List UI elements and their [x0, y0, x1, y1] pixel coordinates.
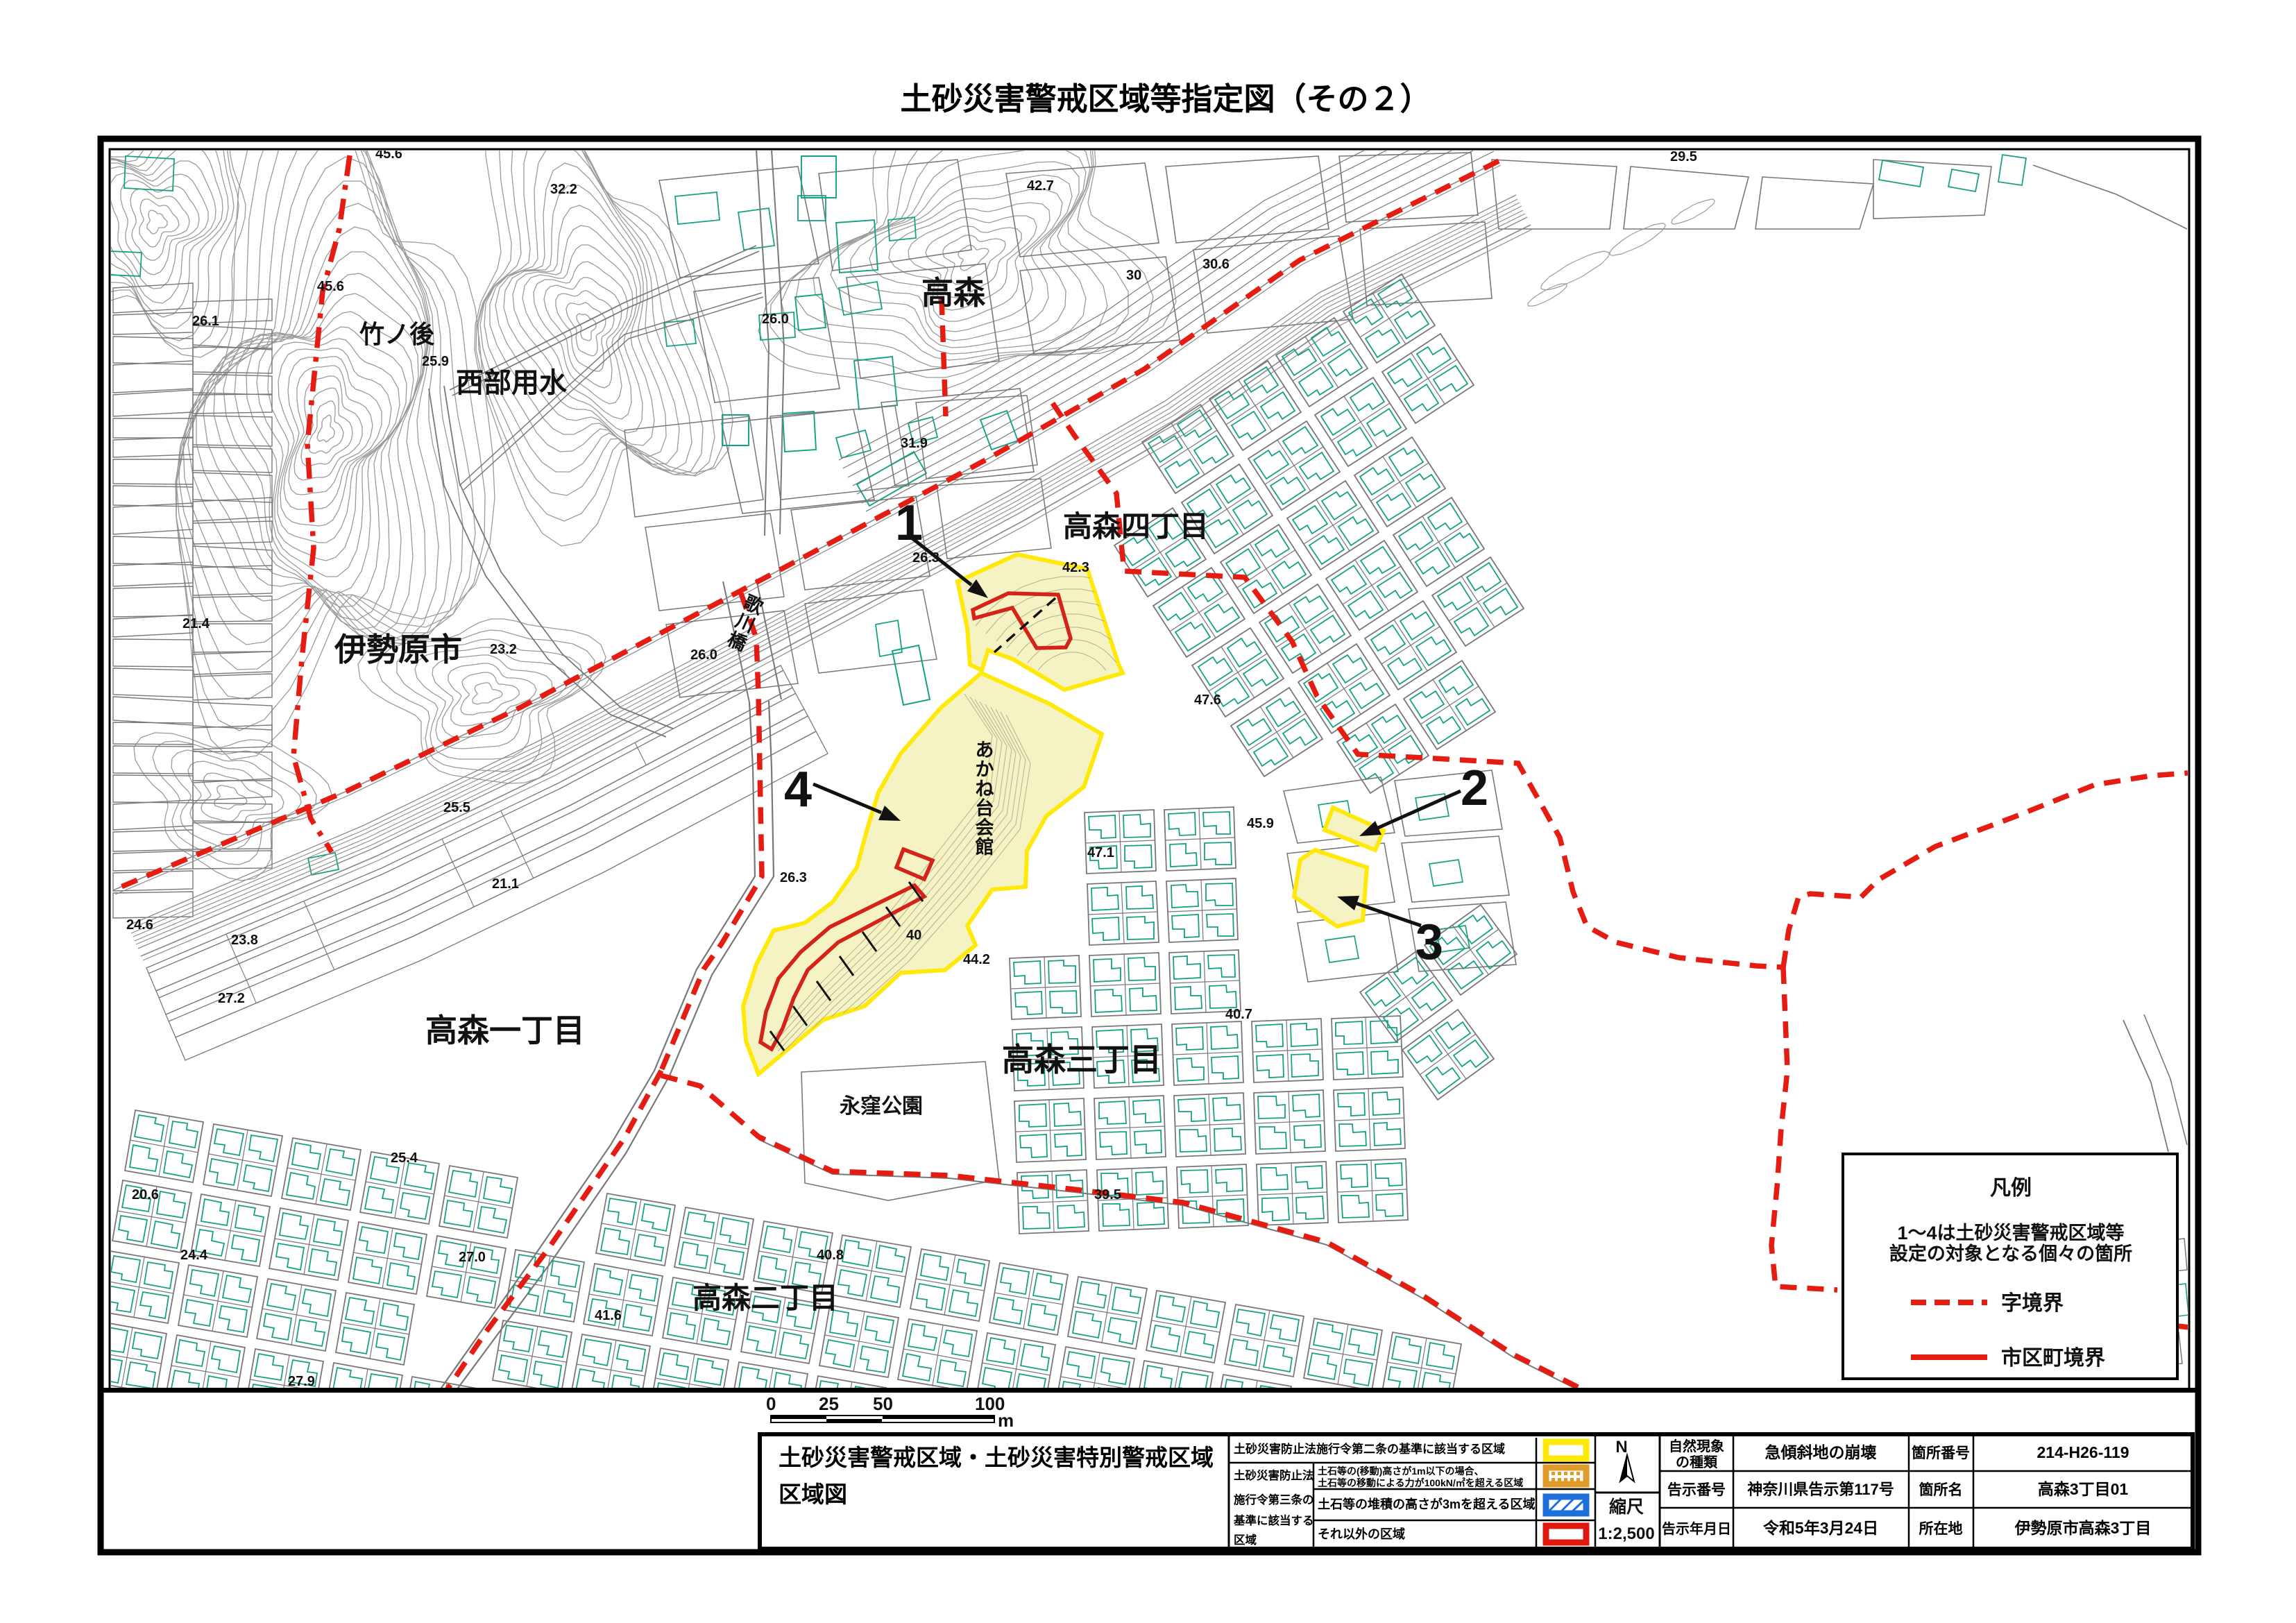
svg-text:40: 40	[906, 928, 921, 943]
svg-text:23.2: 23.2	[490, 642, 517, 657]
svg-text:25.9: 25.9	[422, 354, 449, 369]
svg-text:25.5: 25.5	[443, 800, 470, 815]
svg-text:30.6: 30.6	[1202, 257, 1230, 272]
svg-text:高森三丁目: 高森三丁目	[1002, 1042, 1162, 1078]
svg-text:箇所名: 箇所名	[1919, 1481, 1963, 1498]
svg-text:字境界: 字境界	[2001, 1291, 2064, 1315]
svg-text:所在地: 所在地	[1919, 1520, 1963, 1537]
svg-text:市区町境界: 市区町境界	[2001, 1346, 2105, 1370]
svg-text:29.5: 29.5	[1670, 149, 1697, 164]
svg-text:45.6: 45.6	[317, 279, 344, 294]
svg-text:土石等の堆積の高さが3mを超える区域: 土石等の堆積の高さが3mを超える区域	[1318, 1497, 1535, 1511]
svg-text:高森3丁目01: 高森3丁目01	[2038, 1480, 2129, 1498]
svg-text:45.9: 45.9	[1247, 816, 1274, 831]
svg-text:42.7: 42.7	[1027, 178, 1054, 194]
svg-text:30: 30	[1126, 268, 1141, 283]
svg-text:26.1: 26.1	[192, 314, 219, 329]
svg-text:神奈川県告示第117号: 神奈川県告示第117号	[1747, 1481, 1894, 1498]
svg-text:凡例: 凡例	[1990, 1177, 2032, 1200]
svg-text:44.2: 44.2	[963, 952, 990, 967]
svg-text:50: 50	[873, 1393, 893, 1414]
svg-text:施行令第三条の: 施行令第三条の	[1234, 1493, 1314, 1506]
svg-text:箇所番号: 箇所番号	[1912, 1445, 1970, 1461]
svg-text:214-H26-119: 214-H26-119	[2037, 1443, 2129, 1461]
svg-text:24.6: 24.6	[126, 917, 153, 933]
svg-text:26.0: 26.0	[690, 647, 717, 663]
svg-text:39.5: 39.5	[1094, 1187, 1121, 1203]
svg-text:40.7: 40.7	[1225, 1007, 1252, 1022]
svg-text:永窪公園: 永窪公園	[840, 1094, 923, 1118]
svg-text:32.2: 32.2	[550, 182, 577, 197]
svg-text:21.4: 21.4	[182, 616, 210, 631]
svg-text:4: 4	[784, 762, 812, 817]
svg-text:25: 25	[819, 1393, 839, 1414]
svg-text:縮尺: 縮尺	[1609, 1497, 1644, 1517]
svg-text:27.9: 27.9	[288, 1374, 315, 1389]
svg-text:土砂災害防止法施行令第二条の基準に該当する区域: 土砂災害防止法施行令第二条の基準に該当する区域	[1234, 1442, 1505, 1456]
svg-text:1～4は土砂災害警戒区域等: 1～4は土砂災害警戒区域等	[1897, 1222, 2124, 1243]
svg-text:25.4: 25.4	[391, 1150, 418, 1166]
svg-text:26.0: 26.0	[762, 312, 789, 327]
svg-text:26.3: 26.3	[780, 870, 807, 885]
svg-text:0: 0	[766, 1393, 776, 1414]
svg-text:竹ノ後: 竹ノ後	[359, 320, 435, 348]
svg-text:40.8: 40.8	[817, 1248, 844, 1263]
svg-text:1:2,500: 1:2,500	[1598, 1524, 1654, 1543]
svg-text:m: m	[998, 1410, 1014, 1431]
svg-text:基準に該当する: 基準に該当する	[1234, 1513, 1314, 1527]
svg-text:26.3: 26.3	[912, 550, 939, 566]
svg-text:20.6: 20.6	[132, 1187, 159, 1203]
svg-text:それ以外の区域: それ以外の区域	[1318, 1527, 1405, 1541]
svg-text:自然現象: 自然現象	[1669, 1438, 1724, 1454]
svg-text:47.1: 47.1	[1087, 845, 1114, 860]
svg-text:27.2: 27.2	[218, 991, 245, 1006]
svg-text:高森四丁目: 高森四丁目	[1063, 510, 1209, 543]
svg-text:N: N	[1615, 1438, 1627, 1456]
svg-text:伊勢原市高森3丁目: 伊勢原市高森3丁目	[2014, 1519, 2152, 1537]
svg-text:の種類: の種類	[1676, 1454, 1718, 1470]
svg-text:土石等の移動による力が100kN/㎡を超える区域: 土石等の移動による力が100kN/㎡を超える区域	[1318, 1477, 1523, 1488]
svg-text:土石等の(移動)高さが1m以下の場合、: 土石等の(移動)高さが1m以下の場合、	[1318, 1465, 1484, 1477]
svg-text:高森一丁目: 高森一丁目	[425, 1012, 585, 1048]
svg-text:告示年月日: 告示年月日	[1662, 1520, 1731, 1537]
svg-text:31.9: 31.9	[901, 436, 928, 451]
svg-text:42.3: 42.3	[1062, 560, 1089, 575]
svg-text:高森: 高森	[921, 275, 986, 311]
svg-text:土砂災害警戒区域等指定図（その２）: 土砂災害警戒区域等指定図（その２）	[900, 81, 1431, 117]
svg-text:告示番号: 告示番号	[1667, 1482, 1726, 1498]
svg-text:1: 1	[895, 495, 923, 551]
svg-text:西部用水: 西部用水	[456, 368, 568, 398]
svg-text:土砂災害警戒区域・土砂災害特別警戒区域: 土砂災害警戒区域・土砂災害特別警戒区域	[779, 1445, 1214, 1470]
svg-text:あかね台会館: あかね台会館	[976, 740, 994, 858]
svg-text:23.8: 23.8	[231, 933, 258, 948]
svg-text:設定の対象となる個々の箇所: 設定の対象となる個々の箇所	[1889, 1243, 2132, 1264]
svg-text:区域: 区域	[1234, 1533, 1257, 1547]
svg-text:41.6: 41.6	[595, 1308, 622, 1323]
svg-text:3: 3	[1415, 915, 1443, 970]
svg-text:伊勢原市: 伊勢原市	[334, 631, 462, 668]
svg-text:高森二丁目: 高森二丁目	[692, 1282, 838, 1314]
svg-text:47.6: 47.6	[1194, 692, 1221, 708]
svg-text:急傾斜地の崩壊: 急傾斜地の崩壊	[1765, 1443, 1877, 1461]
svg-text:21.1: 21.1	[492, 876, 519, 892]
svg-text:土砂災害防止法: 土砂災害防止法	[1234, 1468, 1314, 1482]
svg-text:2: 2	[1461, 760, 1488, 816]
svg-text:区域図: 区域図	[779, 1481, 847, 1507]
svg-text:24.4: 24.4	[180, 1248, 208, 1263]
svg-text:令和5年3月24日: 令和5年3月24日	[1763, 1519, 1878, 1537]
svg-text:27.0: 27.0	[459, 1250, 486, 1265]
